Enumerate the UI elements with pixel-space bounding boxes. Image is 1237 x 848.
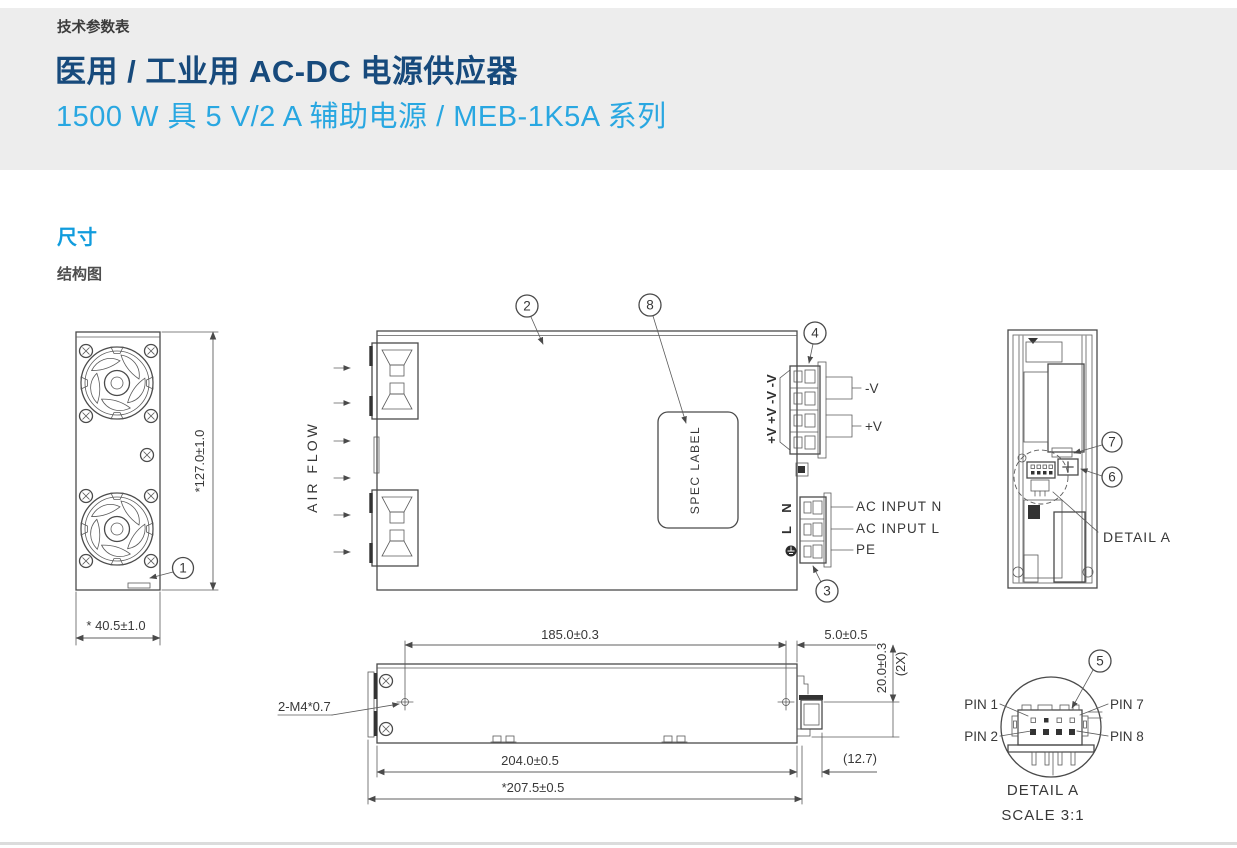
- callout-8: 8: [646, 298, 654, 313]
- wire-neg-label: -V: [865, 381, 879, 396]
- dim-20: 20.0±0.3: [874, 643, 889, 694]
- front-height-dim: *127.0±1.0: [192, 430, 207, 493]
- dim-5: 5.0±0.5: [824, 627, 867, 642]
- end-view: 7 6 DETAIL A: [1008, 330, 1171, 588]
- pin-1-label: PIN 1: [964, 697, 998, 712]
- dim-12-7: (12.7): [843, 751, 877, 766]
- ground-icon: [786, 546, 797, 557]
- dim-185: 185.0±0.3: [541, 627, 599, 642]
- ac-input-n-label: AC INPUT N: [856, 499, 942, 514]
- callout-5: 5: [1096, 654, 1104, 669]
- dim-204: 204.0±0.5: [501, 753, 559, 768]
- terminal-n-label: N: [779, 503, 794, 512]
- callout-1: 1: [179, 561, 187, 576]
- pin-7-label: PIN 7: [1110, 697, 1144, 712]
- terminal-l-label: L: [779, 526, 794, 534]
- dim-207-5: *207.5±0.5: [502, 780, 565, 795]
- air-flow-arrows: [334, 368, 350, 552]
- front-view: *127.0±1.0 * 40.5±1.0 1: [76, 332, 218, 645]
- spec-label: SPEC LABEL: [688, 426, 702, 514]
- callout-7: 7: [1108, 435, 1116, 450]
- callout-4: 4: [811, 326, 819, 341]
- dim-20-qty: (2X): [893, 652, 908, 677]
- detail-a-title: DETAIL A: [1007, 782, 1079, 799]
- pin-2-label: PIN 2: [964, 729, 998, 744]
- dc-terminal-labels: +V +V -V -V: [764, 374, 779, 444]
- detail-a-view: PIN 1 PIN 2 PIN 7 PIN 8 5 DETAIL A SCALE…: [964, 650, 1144, 824]
- wire-pos-label: +V: [865, 419, 882, 434]
- screw-note: 2-M4*0.7: [278, 699, 331, 714]
- front-width-dim: * 40.5±1.0: [86, 618, 145, 633]
- side-view: 185.0±0.3 5.0±0.5 20.0±0.3 (2X) (12.7) 2…: [278, 627, 908, 804]
- pin-8-label: PIN 8: [1110, 729, 1144, 744]
- air-flow-label: AIR FLOW: [304, 421, 320, 513]
- callout-2: 2: [523, 299, 531, 314]
- callout-3: 3: [823, 584, 831, 599]
- pe-label: PE: [856, 542, 876, 557]
- ac-input-terminal: N L AC INPUT N AC INPUT L PE: [779, 493, 942, 567]
- detail-a-callout-label: DETAIL A: [1103, 529, 1171, 545]
- callout-6: 6: [1108, 470, 1116, 485]
- ac-input-l-label: AC INPUT L: [856, 521, 940, 536]
- top-view: AIR FLOW SPEC LABEL 2 8: [304, 294, 942, 602]
- mechanical-drawing: *127.0±1.0 * 40.5±1.0 1 AIR FLOW SPEC LA…: [0, 0, 1237, 848]
- dc-output-terminal: +V +V -V -V -V +V: [764, 362, 882, 458]
- detail-a-scale: SCALE 3:1: [1001, 807, 1084, 824]
